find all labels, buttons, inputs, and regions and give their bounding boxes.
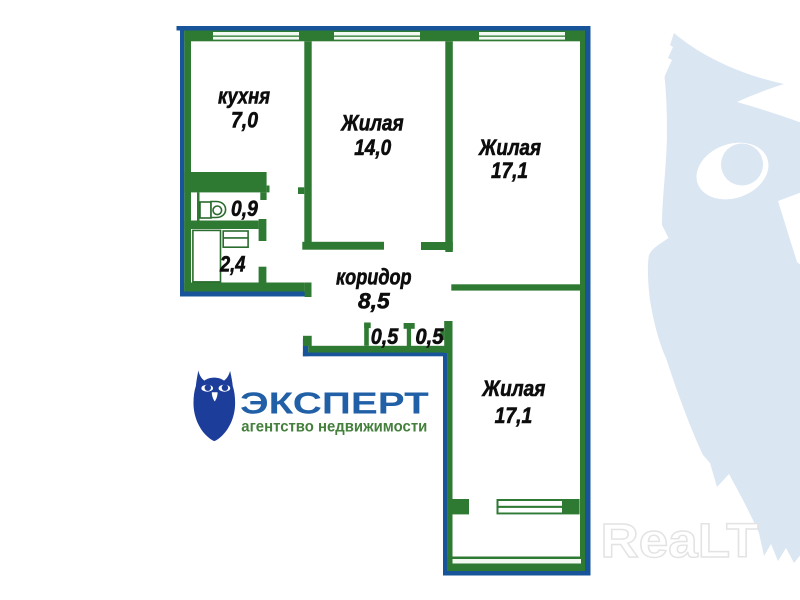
svg-text:агентство недвижимости: агентство недвижимости [241,418,427,435]
svg-text:Жилая: Жилая [340,110,403,135]
svg-text:0,9: 0,9 [231,196,258,221]
svg-text:0,5: 0,5 [371,324,399,349]
svg-text:коридор: коридор [336,265,412,290]
svg-text:17,1: 17,1 [491,158,528,183]
svg-text:кухня: кухня [218,83,270,108]
svg-text:17,1: 17,1 [495,403,533,428]
svg-text:8,5: 8,5 [358,289,390,314]
svg-text:14,0: 14,0 [354,135,392,160]
svg-text:0,5: 0,5 [415,324,444,349]
svg-text:Жилая: Жилая [478,135,541,160]
svg-text:2,4: 2,4 [219,252,245,277]
svg-text:7,0: 7,0 [231,108,259,133]
svg-text:ReaLT: ReaLT [601,515,759,568]
svg-text:ЭКСПЕРТ: ЭКСПЕРТ [240,386,429,421]
svg-text:Жилая: Жилая [482,376,546,401]
